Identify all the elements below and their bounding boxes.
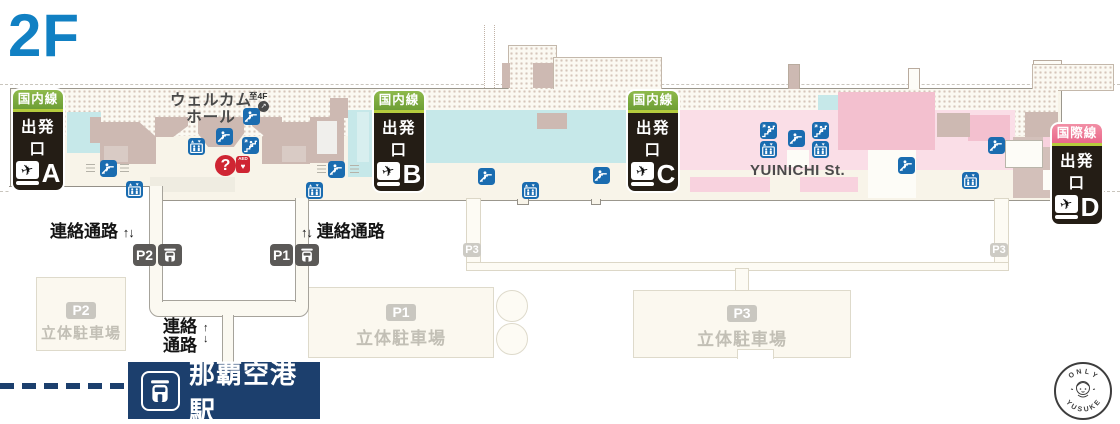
welcome-hall-label: ウェルカム ホール <box>165 92 257 126</box>
roof-stub <box>788 64 800 90</box>
p2-badge: P2 <box>133 244 156 266</box>
roof-shop-block <box>533 63 553 88</box>
zone-pink-block <box>968 115 1010 141</box>
gate-sign-c: 国内線 出発口 ✈ C <box>628 91 678 191</box>
stamp-letter: L <box>1084 369 1090 377</box>
plane-icon: ✈ <box>631 162 654 186</box>
welcome-hall-line1: ウェルカム <box>165 92 257 109</box>
gate-sign-a: 国内線 出発口 ✈ A <box>13 90 63 190</box>
zone-teal-c <box>560 150 638 163</box>
gate-c-category: 国内線 <box>628 91 678 110</box>
station-name: 那覇空港駅 <box>189 354 320 424</box>
parking-p2-name: 立体駐車場 <box>37 322 125 343</box>
hall-wall-light <box>282 146 306 162</box>
updown-arrows: ↑↓ <box>123 225 134 240</box>
gate-c-label: 出発口 <box>628 116 678 160</box>
roof-shop-block <box>502 63 510 88</box>
gate-d-label: 出発口 <box>1052 149 1102 193</box>
floor-label: 2F <box>8 6 80 66</box>
stamp-letter: S <box>1077 406 1083 414</box>
passage-text: 連絡 <box>163 317 197 336</box>
zone-pink-block <box>838 92 935 150</box>
monorail-icon <box>295 244 319 266</box>
passage-label-left: 連絡通路 ↑↓ <box>50 217 134 242</box>
rail-mark <box>86 164 95 172</box>
gate-b-letter: B <box>403 161 422 187</box>
parking-p2-id: P2 <box>66 302 95 319</box>
gate-b-category: 国内線 <box>374 91 424 110</box>
passage-label-vertical: 連絡 通路 <box>163 317 197 355</box>
to-4f-escalator-icon: ↗ <box>258 101 269 112</box>
passage-text: 通路 <box>163 336 197 355</box>
roof-block <box>1032 64 1114 91</box>
shop-block <box>537 113 567 129</box>
stamp-letter: N <box>1076 368 1082 376</box>
parking-p3: P3 立体駐車場 <box>633 290 851 358</box>
parking-p3-notch <box>737 349 774 359</box>
p3-connector-left <box>466 198 481 271</box>
p3-tag-left: P3 <box>463 243 481 257</box>
street-label: YUINICHI St. <box>750 162 845 179</box>
information-icon: ? <box>215 155 236 176</box>
landing-block <box>1005 140 1043 168</box>
monorail-icon <box>141 371 180 411</box>
p3-connector-stub <box>735 268 749 291</box>
parking-p1-id: P1 <box>386 304 415 321</box>
zone-pink-strip <box>800 177 858 192</box>
stamp: ONLYYUSUKE <box>1054 362 1112 420</box>
down-arrow: ↓ <box>203 334 209 345</box>
aed-heart: ♥ <box>236 162 250 171</box>
parking-p2: P2 立体駐車場 <box>36 277 126 351</box>
shop-block <box>937 113 970 137</box>
hall-inset <box>317 121 337 154</box>
gate-c-letter: C <box>657 161 676 187</box>
zone-white-gap <box>868 150 916 198</box>
passage-text: 連絡通路 <box>50 222 118 241</box>
parking-p3-id: P3 <box>727 305 756 322</box>
roof-corridor-stub <box>484 25 495 88</box>
gate-a-label: 出発口 <box>13 115 63 159</box>
gate-d-category: 国際線 <box>1052 124 1102 143</box>
parking-p1-name: 立体駐車場 <box>309 324 493 349</box>
monorail-track <box>0 383 128 389</box>
shop-block <box>330 98 348 118</box>
rail-mark <box>317 165 326 173</box>
edge-notch <box>591 199 601 205</box>
station-box: 那覇空港駅 <box>128 362 320 419</box>
plane-icon: ✈ <box>377 162 400 186</box>
zone-pink-strip <box>690 177 770 192</box>
gate-a-letter: A <box>42 160 61 186</box>
rail-mark <box>120 164 129 172</box>
gate-d-letter: D <box>1081 194 1100 220</box>
parking-ramp-circle <box>496 290 528 322</box>
parking-ramp-circle <box>496 323 528 355</box>
edge-notch <box>517 199 529 205</box>
aed-icon: AED ♥ <box>236 156 250 173</box>
passage-text: 連絡通路 <box>317 222 385 241</box>
parking-p3-name: 立体駐車場 <box>634 325 850 350</box>
p3-tag-right: P3 <box>990 243 1008 257</box>
roof-block <box>553 57 662 91</box>
airport-floor-map-2f: P3 P3 P2 立体駐車場 P1 立体駐車場 P3 立体駐車場 連絡通路 ↑↓… <box>0 0 1120 424</box>
stamp-doodle <box>1068 377 1098 403</box>
p3-connector-right <box>994 198 1009 271</box>
zone-pink-dot <box>1043 137 1052 147</box>
parking-p1: P1 立体駐車場 <box>308 287 494 358</box>
passage-label-right: ↑↓ 連絡通路 <box>301 217 385 242</box>
welcome-hall-line2: ホール <box>165 109 257 126</box>
roof-stub <box>908 68 920 90</box>
gate-a-category: 国内線 <box>13 90 63 109</box>
p1-badge: P1 <box>270 244 293 266</box>
plane-icon: ✈ <box>1055 195 1078 219</box>
updown-arrows: ↑↓ <box>301 225 312 240</box>
hall-wall-light <box>104 146 128 162</box>
gate-sign-b: 国内線 出発口 ✈ B <box>374 91 424 191</box>
monorail-icon <box>158 244 182 266</box>
updown-arrows-vertical: ↑ ↓ <box>203 323 209 345</box>
plane-icon: ✈ <box>16 161 39 185</box>
hall-wall <box>90 117 101 143</box>
gate-b-label: 出発口 <box>374 116 424 160</box>
rail-mark <box>350 165 359 173</box>
gate-sign-d: 国際線 出発口 ✈ D <box>1052 124 1102 224</box>
zone-teal-strip <box>357 112 369 162</box>
